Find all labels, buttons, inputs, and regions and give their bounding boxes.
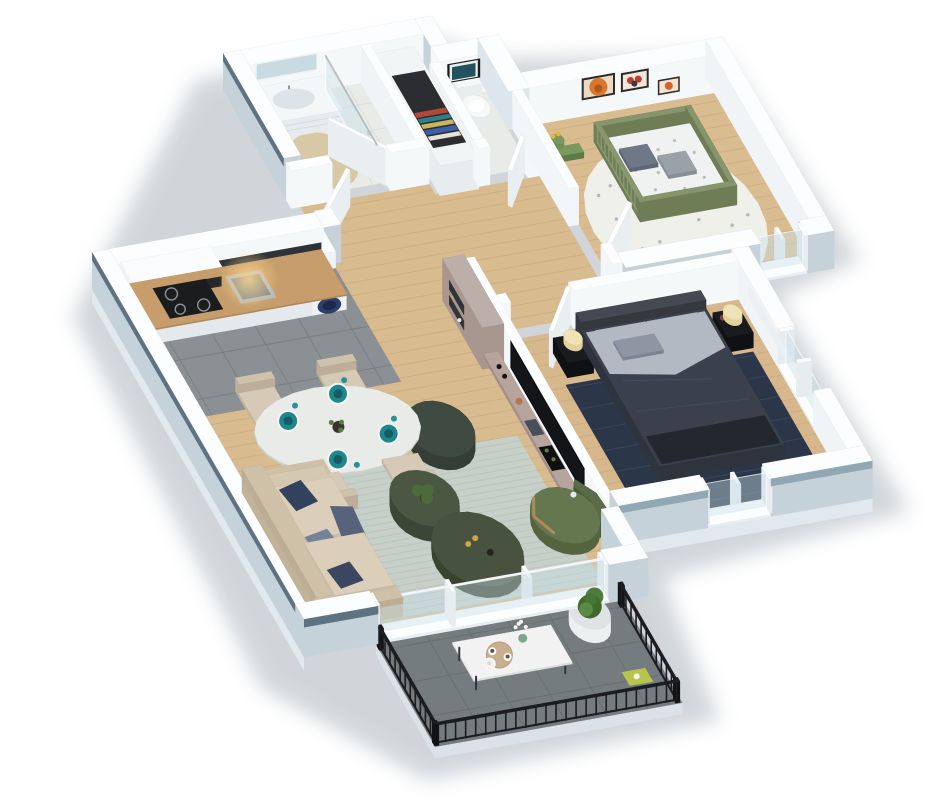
bedroom-east-window-post-2: [796, 357, 812, 398]
ledge-white-orchid: [570, 492, 576, 498]
wall-bathroom-south-b: [386, 138, 430, 191]
place-setting-center-2: [334, 389, 343, 398]
nursery-poster-small-art: [665, 82, 673, 90]
niche-deco-white: [457, 318, 461, 322]
nursery-poster-large-art-inner: [594, 84, 602, 92]
floorplan-viewport: [0, 0, 941, 800]
nursery-poster-medium-frame: [622, 70, 648, 92]
wall-bathroom-south-a: [286, 155, 332, 209]
coffee-table-vase-dark: [487, 549, 494, 556]
teapot-lid: [487, 661, 491, 665]
balcony-plant-bush-3: [579, 602, 593, 616]
railing-post-sw: [432, 720, 439, 746]
kitchen-task-light-glow: [219, 249, 279, 309]
place-setting-center-4: [384, 429, 393, 438]
ledge-terracotta-vase: [516, 398, 523, 405]
balcony-lime-tray-cup: [634, 673, 640, 679]
flower-vase-green: [518, 634, 527, 643]
wall-wc-south-a: [473, 138, 490, 187]
floorplan-3d-render: [0, 0, 941, 800]
nursery-poster-medium-art-dark: [631, 81, 637, 87]
place-setting-center-3: [333, 455, 342, 464]
place-setting-center-1: [284, 416, 293, 425]
